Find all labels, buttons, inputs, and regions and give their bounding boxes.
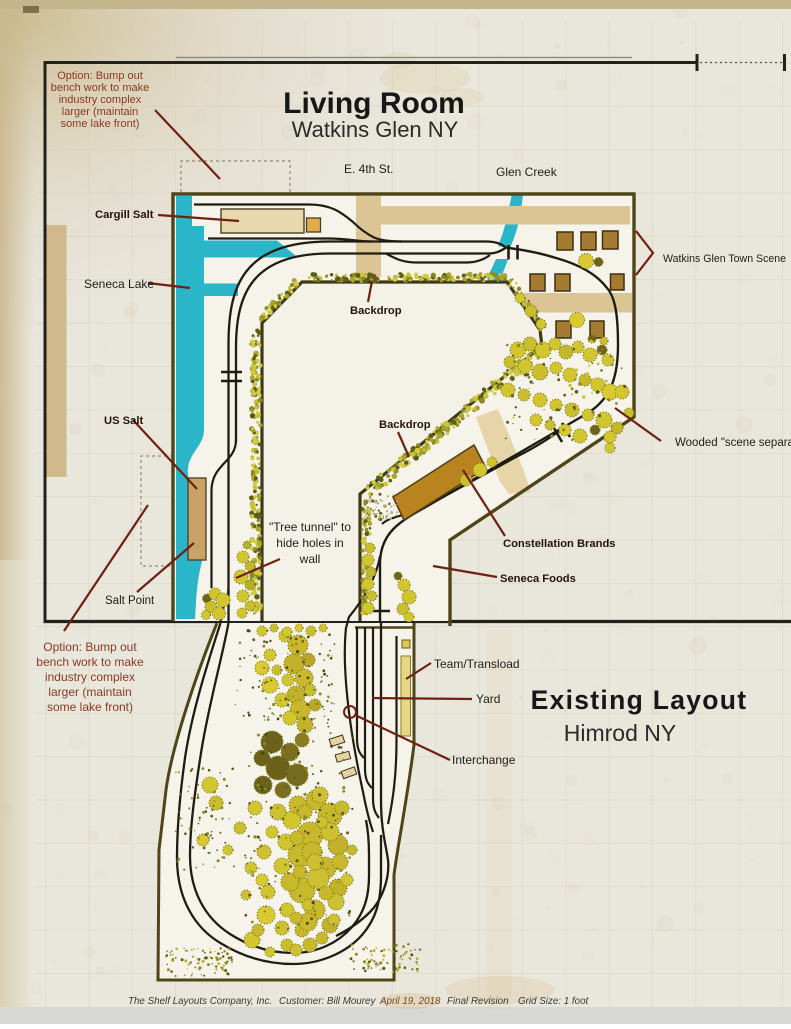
svg-text:Yard: Yard: [476, 692, 500, 706]
svg-text:Wooded "scene separator": Wooded "scene separator": [675, 437, 791, 449]
svg-text:Living Room: Living Room: [283, 87, 465, 120]
svg-text:Team/Transload: Team/Transload: [434, 657, 520, 671]
svg-text:Backdrop: Backdrop: [379, 419, 431, 431]
svg-text:Backdrop: Backdrop: [350, 305, 402, 317]
svg-text:Option: Bump outbench work to: Option: Bump outbench work to makeindust…: [51, 70, 149, 130]
svg-text:Seneca Lake: Seneca Lake: [84, 277, 154, 291]
svg-text:Himrod NY: Himrod NY: [564, 720, 676, 746]
svg-text:Salt Point: Salt Point: [105, 595, 155, 607]
svg-text:Watkins Glen Town Scene: Watkins Glen Town Scene: [663, 253, 786, 265]
svg-text:Seneca Foods: Seneca Foods: [500, 573, 576, 585]
svg-text:E. 4th St.: E. 4th St.: [344, 162, 393, 176]
svg-text:US Salt: US Salt: [104, 415, 143, 427]
svg-text:Cargill Salt: Cargill Salt: [95, 209, 154, 221]
svg-text:The Shelf Layouts Company, Inc: The Shelf Layouts Company, Inc.Customer:…: [128, 996, 590, 1007]
svg-text:Option: Bump outbench work to: Option: Bump outbench work to makeindust…: [36, 640, 144, 714]
svg-text:Interchange: Interchange: [452, 753, 516, 767]
svg-text:Constellation Brands: Constellation Brands: [503, 538, 616, 550]
svg-text:Watkins Glen NY: Watkins Glen NY: [292, 117, 459, 142]
svg-text:Existing Layout: Existing Layout: [531, 685, 748, 715]
svg-text:Glen Creek: Glen Creek: [496, 165, 558, 179]
